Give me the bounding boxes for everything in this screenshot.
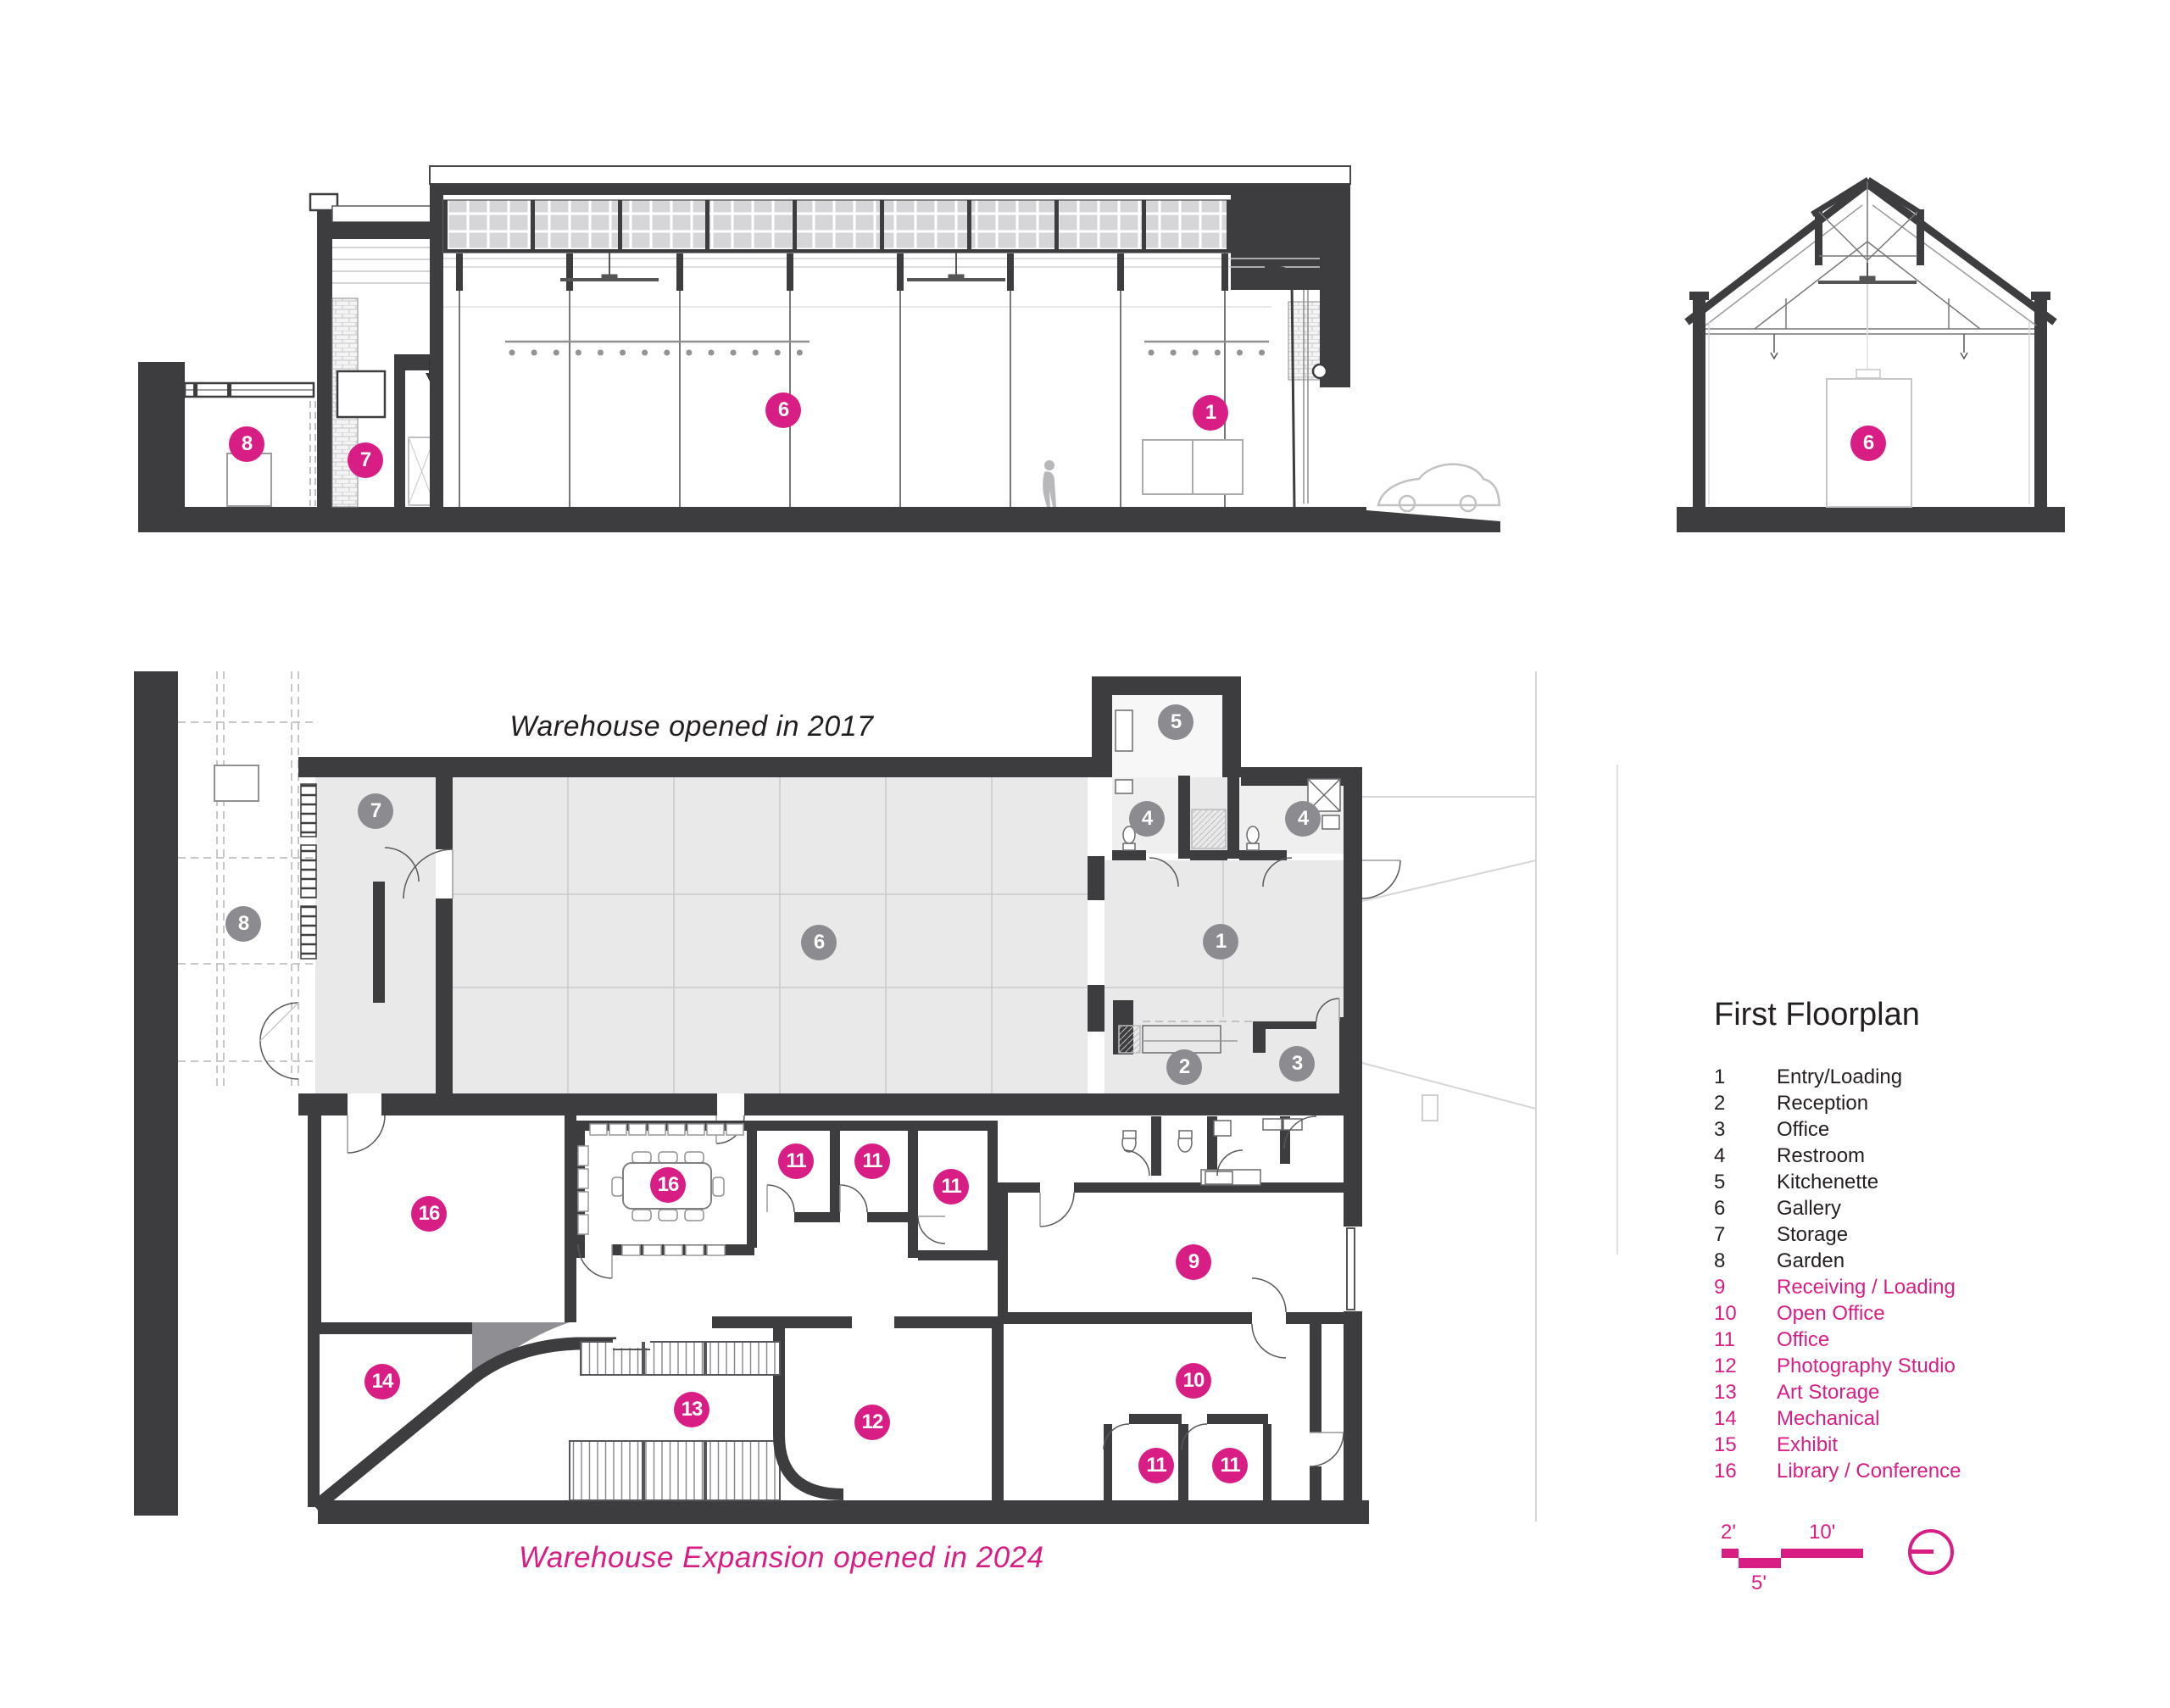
legend-item-number: 15 bbox=[1714, 1432, 1777, 1458]
floorplan-marker-9: 9 bbox=[1176, 1244, 1211, 1280]
scale-label-2ft: 2' bbox=[1721, 1521, 1736, 1544]
art-storage-racks bbox=[570, 1339, 780, 1500]
legend-item-number: 5 bbox=[1714, 1169, 1777, 1195]
legend-item-number: 8 bbox=[1714, 1248, 1777, 1274]
legend-item-number: 11 bbox=[1714, 1327, 1777, 1353]
floorplan-marker-11: 11 bbox=[854, 1143, 890, 1179]
legend-item-1: 1Entry/Loading bbox=[1714, 1064, 2070, 1090]
long-section-marker-6: 6 bbox=[765, 392, 801, 428]
legend-item-11: 11Office bbox=[1714, 1327, 2070, 1353]
legend-item-label: Kitchenette bbox=[1777, 1169, 1878, 1195]
legend-item-3: 3Office bbox=[1714, 1116, 2070, 1143]
scale-label-5ft: 5' bbox=[1751, 1572, 1767, 1595]
legend-item-number: 6 bbox=[1714, 1195, 1777, 1221]
floorplan-marker-12: 12 bbox=[854, 1405, 890, 1440]
floorplan-marker-11: 11 bbox=[778, 1143, 814, 1179]
legend-item-label: Garden bbox=[1777, 1248, 1844, 1274]
floorplan-marker-4: 4 bbox=[1129, 801, 1165, 837]
long-section-drawing bbox=[138, 166, 1500, 532]
floorplan-marker-10: 10 bbox=[1176, 1363, 1211, 1399]
expansion-plan-title: Warehouse Expansion opened in 2024 bbox=[519, 1541, 919, 1575]
legend-item-label: Office bbox=[1777, 1116, 1829, 1143]
legend-item-13: 13Art Storage bbox=[1714, 1379, 2070, 1405]
floorplan-marker-16: 16 bbox=[650, 1167, 686, 1203]
floorplan-marker-16: 16 bbox=[411, 1196, 447, 1232]
cyc-corner bbox=[779, 1435, 843, 1494]
legend-item-6: 6Gallery bbox=[1714, 1195, 2070, 1221]
legend-item-16: 16Library / Conference bbox=[1714, 1458, 2070, 1484]
scale-bar-segment-10ft bbox=[1781, 1549, 1863, 1558]
floorplan-marker-4: 4 bbox=[1285, 801, 1321, 837]
long-section-marker-1: 1 bbox=[1193, 395, 1228, 431]
legend-item-number: 9 bbox=[1714, 1274, 1777, 1300]
legend-item-label: Restroom bbox=[1777, 1143, 1865, 1169]
north-arrow-icon bbox=[1908, 1529, 1954, 1575]
legend-item-label: Office bbox=[1777, 1327, 1829, 1353]
floorplan-marker-6: 6 bbox=[801, 925, 837, 960]
legend-item-15: 15Exhibit bbox=[1714, 1432, 2070, 1458]
light-rails bbox=[505, 342, 1269, 353]
legend-item-14: 14Mechanical bbox=[1714, 1405, 2070, 1432]
hall-columns bbox=[456, 253, 1228, 507]
legend-item-9: 9Receiving / Loading bbox=[1714, 1274, 2070, 1300]
floorplan-marker-14: 14 bbox=[364, 1364, 400, 1399]
floorplan-marker-11: 11 bbox=[1138, 1448, 1174, 1483]
legend-item-label: Exhibit bbox=[1777, 1432, 1838, 1458]
legend-item-number: 14 bbox=[1714, 1405, 1777, 1432]
scale-label-10ft: 10' bbox=[1809, 1521, 1835, 1544]
existing-plan-title: Warehouse opened in 2017 bbox=[509, 710, 875, 743]
legend-item-10: 10Open Office bbox=[1714, 1300, 2070, 1327]
legend-item-label: Mechanical bbox=[1777, 1405, 1879, 1432]
legend-item-number: 7 bbox=[1714, 1221, 1777, 1248]
legend-title: First Floorplan bbox=[1714, 997, 2070, 1033]
floorplan-marker-11: 11 bbox=[1212, 1448, 1248, 1483]
scale-bar-segment-5ft bbox=[1739, 1558, 1781, 1568]
floorplan-marker-1: 1 bbox=[1203, 924, 1238, 960]
legend-item-number: 2 bbox=[1714, 1090, 1777, 1116]
floorplan-drawing bbox=[134, 671, 1617, 1524]
legend-item-5: 5Kitchenette bbox=[1714, 1169, 2070, 1195]
floorplan-marker-3: 3 bbox=[1279, 1046, 1315, 1082]
legend-item-label: Storage bbox=[1777, 1221, 1848, 1248]
legend-item-7: 7Storage bbox=[1714, 1221, 2070, 1248]
garden-grid bbox=[178, 671, 318, 1089]
long-section-marker-7: 7 bbox=[348, 442, 383, 478]
legend-item-label: Photography Studio bbox=[1777, 1353, 1956, 1379]
site-context-lines bbox=[1362, 671, 1617, 1522]
legend-item-number: 10 bbox=[1714, 1300, 1777, 1327]
legend-item-label: Library / Conference bbox=[1777, 1458, 1961, 1484]
cross-section-marker-6: 6 bbox=[1850, 426, 1886, 461]
floorplan-marker-2: 2 bbox=[1166, 1049, 1202, 1085]
scale-bar: 2' 10' 5' bbox=[1714, 1517, 2002, 1611]
person-silhouette bbox=[1043, 460, 1056, 507]
legend-item-8: 8Garden bbox=[1714, 1248, 2070, 1274]
legend-item-label: Art Storage bbox=[1777, 1379, 1879, 1405]
legend-item-number: 16 bbox=[1714, 1458, 1777, 1484]
legend-item-label: Reception bbox=[1777, 1090, 1868, 1116]
scale-bar-segment-2ft bbox=[1722, 1549, 1739, 1558]
legend-item-4: 4Restroom bbox=[1714, 1143, 2070, 1169]
legend-item-number: 3 bbox=[1714, 1116, 1777, 1143]
drawing-sheet: Warehouse opened in 2017 Warehouse Expan… bbox=[0, 0, 2170, 1708]
legend-item-number: 13 bbox=[1714, 1379, 1777, 1405]
cross-section-drawing bbox=[1677, 180, 2065, 532]
floorplan-marker-7: 7 bbox=[358, 793, 393, 829]
long-section-marker-8: 8 bbox=[229, 426, 264, 462]
car-silhouette bbox=[1378, 465, 1500, 511]
legend-item-number: 12 bbox=[1714, 1353, 1777, 1379]
floorplan-marker-11: 11 bbox=[933, 1169, 969, 1205]
legend: First Floorplan 1Entry/Loading2Reception… bbox=[1714, 997, 2070, 1484]
legend-item-label: Gallery bbox=[1777, 1195, 1841, 1221]
legend-item-12: 12Photography Studio bbox=[1714, 1353, 2070, 1379]
legend-item-label: Entry/Loading bbox=[1777, 1064, 1902, 1090]
legend-item-label: Receiving / Loading bbox=[1777, 1274, 1956, 1300]
floorplan-marker-8: 8 bbox=[225, 906, 261, 942]
legend-item-label: Open Office bbox=[1777, 1300, 1885, 1327]
floorplan-marker-5: 5 bbox=[1158, 704, 1193, 740]
legend-items: 1Entry/Loading2Reception3Office4Restroom… bbox=[1714, 1064, 2070, 1484]
legend-item-2: 2Reception bbox=[1714, 1090, 2070, 1116]
legend-item-number: 4 bbox=[1714, 1143, 1777, 1169]
floorplan-marker-13: 13 bbox=[674, 1392, 709, 1427]
legend-item-number: 1 bbox=[1714, 1064, 1777, 1090]
